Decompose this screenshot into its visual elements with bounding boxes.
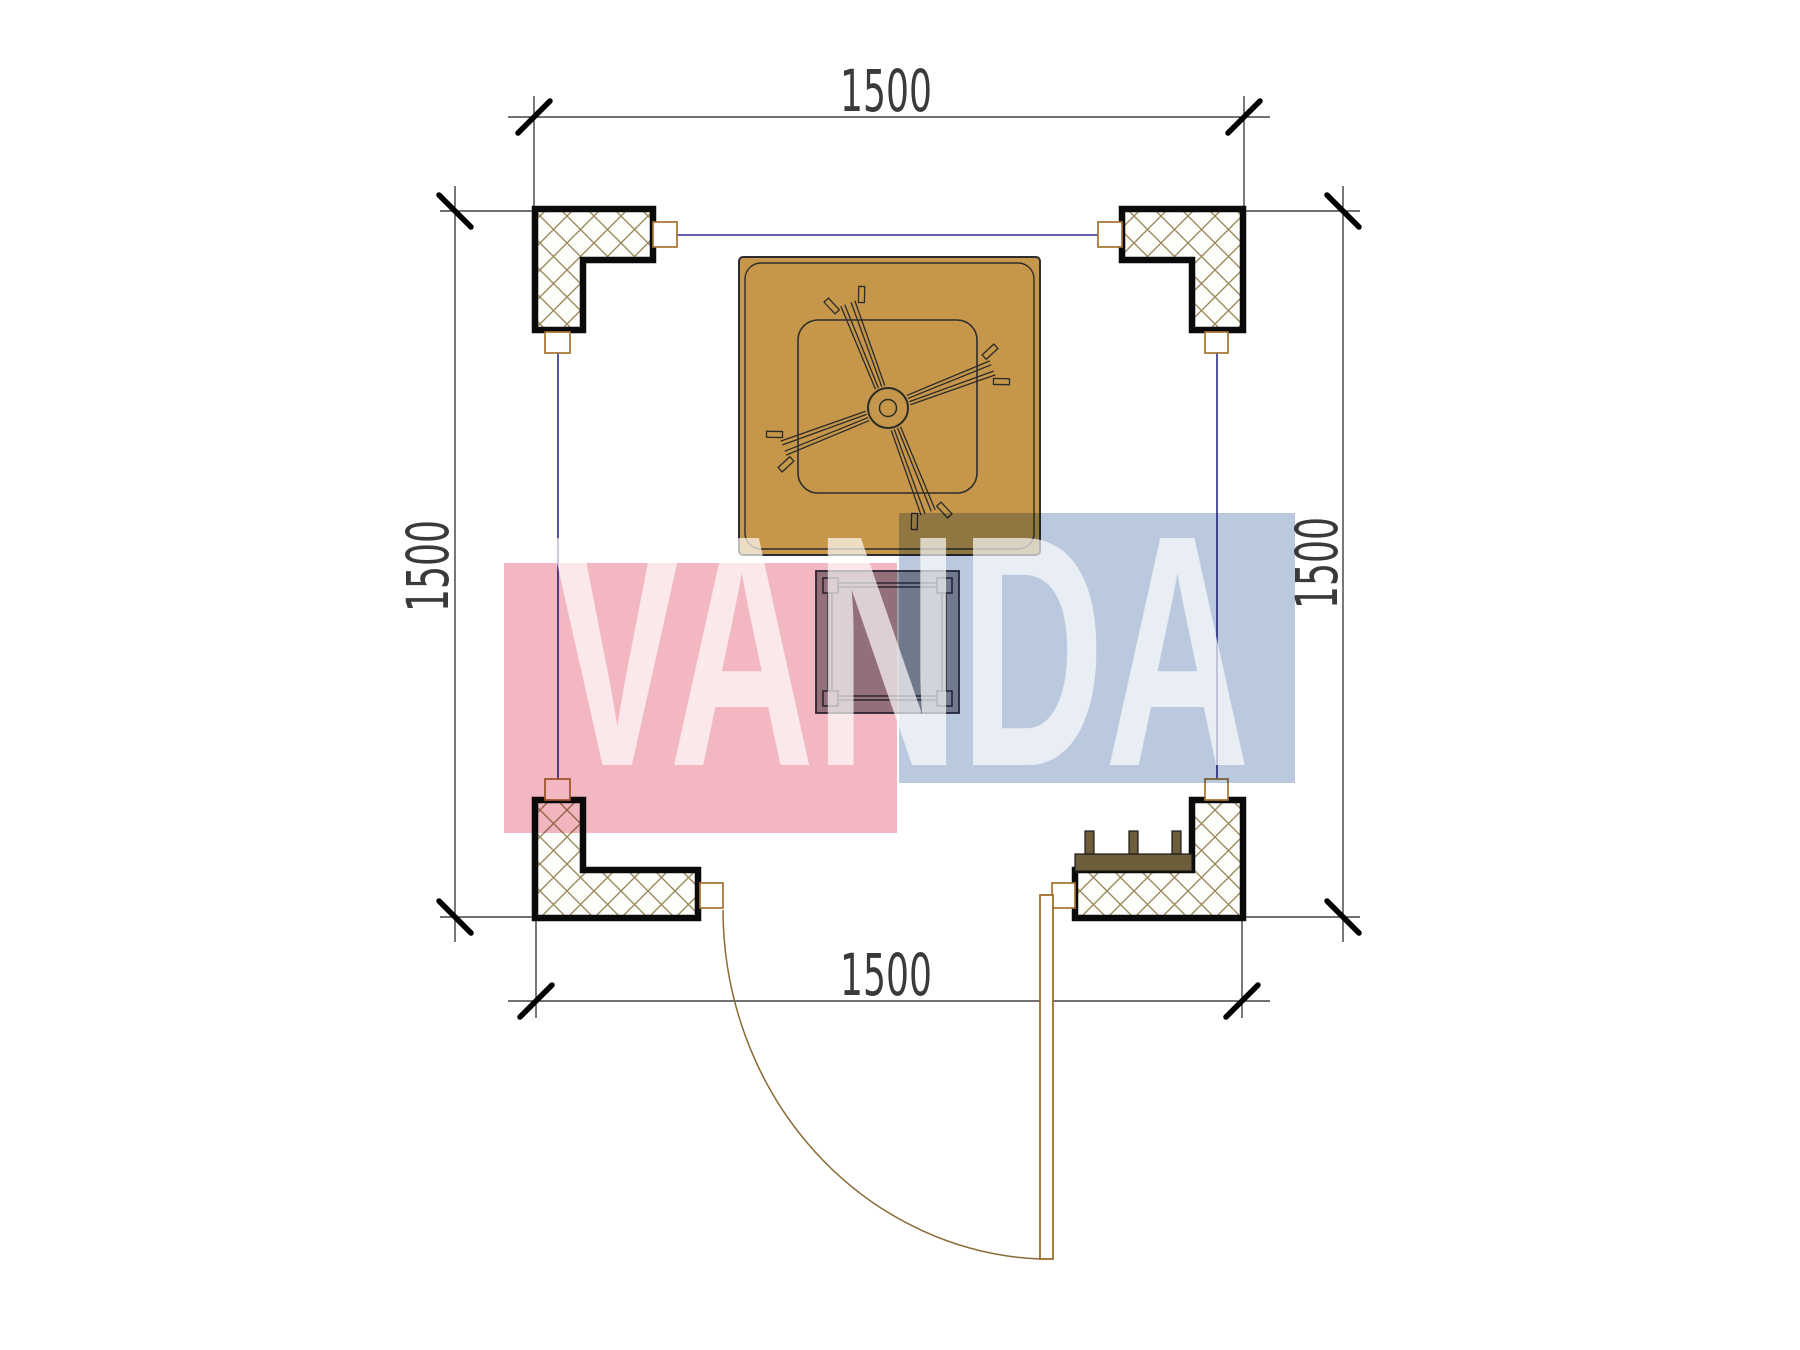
floor-plan-canvas: 1500 1500 1500 1500 [0, 0, 1800, 1350]
door-leaf [1040, 895, 1053, 1259]
column-anchor-tab [1098, 222, 1122, 247]
column-anchor-tab [653, 222, 677, 247]
top-dimension-label: 1500 [840, 57, 932, 125]
bottom-dimension-label: 1500 [840, 941, 932, 1009]
watermark-text: VANDA [550, 466, 1250, 835]
bench [1075, 831, 1192, 871]
canopy-hub-outer [868, 388, 908, 428]
bench-seat [1075, 854, 1192, 871]
corner-column-top-right [1122, 209, 1243, 330]
column-anchor-tab [1205, 332, 1228, 353]
column-anchor-tab [545, 332, 570, 353]
column-anchor-tab [700, 883, 723, 908]
column-anchor-tab [1052, 883, 1075, 908]
left-dimension-label: 1500 [394, 520, 462, 612]
corner-column-top-left [535, 209, 653, 330]
